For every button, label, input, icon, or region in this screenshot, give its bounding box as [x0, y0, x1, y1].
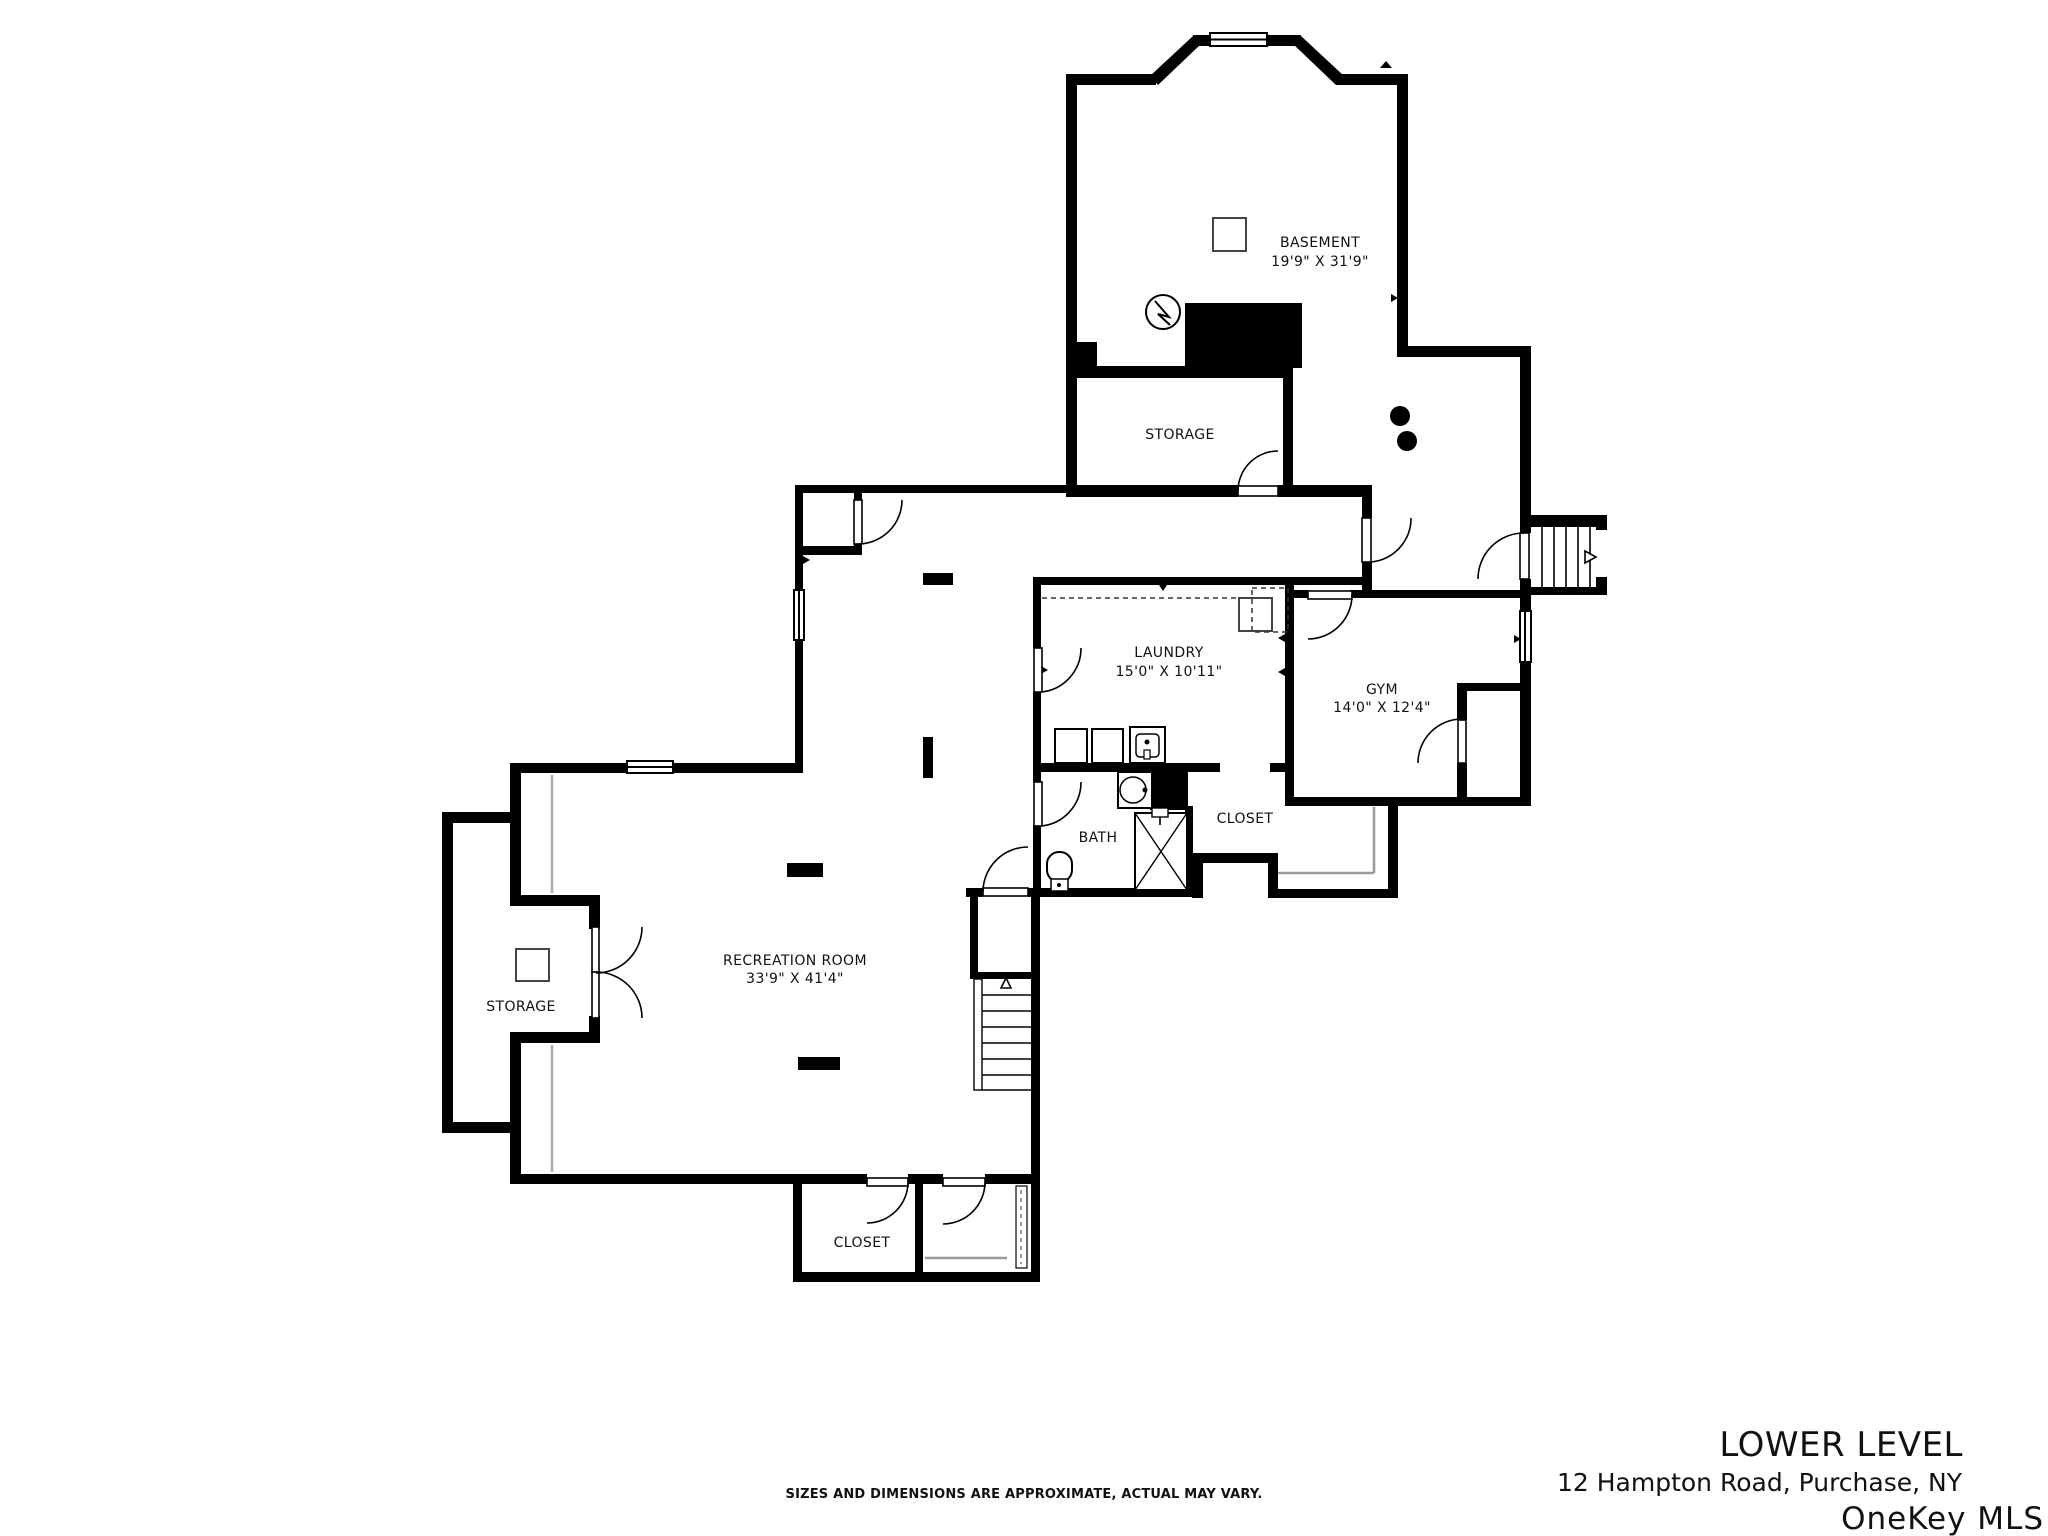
- door-leaf: [1520, 533, 1529, 579]
- washer-symbol: [1055, 729, 1087, 763]
- door-leaf: [854, 500, 862, 544]
- door-leaf: [1034, 782, 1042, 826]
- door-leaf: [1034, 648, 1042, 692]
- column-post: [923, 573, 953, 585]
- storage-post-symbol: [516, 949, 549, 981]
- room-label-recreation: RECREATION ROOM: [723, 953, 867, 969]
- door-leaf: [1458, 720, 1466, 763]
- double-door-leaf: [592, 927, 599, 973]
- chimney-block: [1185, 303, 1302, 368]
- door-leaf: [1308, 591, 1352, 599]
- dryer-symbol: [1092, 729, 1123, 763]
- room-label-closet-gym: CLOSET: [1217, 811, 1274, 827]
- door-leaf: [1238, 486, 1278, 496]
- door-leaf: [867, 1178, 908, 1186]
- disclaimer-text: SIZES AND DIMENSIONS ARE APPROXIMATE, AC…: [786, 1487, 1263, 1502]
- stairs-lower: [974, 978, 1031, 1090]
- room-label-storage-upper: STORAGE: [1145, 427, 1214, 443]
- footer: SIZES AND DIMENSIONS ARE APPROXIMATE, AC…: [786, 1425, 2044, 1536]
- room-dims-gym: 14'0" X 12'4": [1333, 700, 1431, 716]
- column-post: [798, 1057, 840, 1070]
- room-dims-recreation: 33'9" X 41'4": [746, 971, 844, 987]
- water-heater-symbol: [1146, 295, 1180, 329]
- mls-watermark: OneKey MLS: [1841, 1501, 2044, 1536]
- floor-title: LOWER LEVEL: [1719, 1425, 1963, 1465]
- toilet-symbol: [1047, 852, 1072, 891]
- room-label-gym: GYM: [1366, 682, 1398, 698]
- door-leaf: [1362, 518, 1371, 562]
- room-label-bath: BATH: [1079, 830, 1118, 846]
- closet-rod: [1016, 1186, 1027, 1268]
- room-label-laundry: LAUNDRY: [1134, 645, 1203, 661]
- laundry-sink-symbol: [1130, 727, 1165, 763]
- column-dot: [1397, 431, 1417, 451]
- basement-post-symbol: [1213, 218, 1246, 251]
- floor-plan-drawing: BASEMENT 19'9" X 31'9" STORAGE LAUNDRY 1…: [0, 0, 2048, 1536]
- room-label-closet-lower: CLOSET: [834, 1235, 891, 1251]
- room-label-storage-left: STORAGE: [486, 999, 555, 1015]
- room-dims-basement: 19'9" X 31'9": [1271, 254, 1369, 270]
- floor-plan-page: BASEMENT 19'9" X 31'9" STORAGE LAUNDRY 1…: [0, 0, 2048, 1536]
- column-post: [787, 863, 823, 877]
- room-label-basement: BASEMENT: [1280, 235, 1360, 251]
- door-leaf: [943, 1178, 985, 1186]
- column-dot: [1390, 406, 1410, 426]
- double-door-leaf: [592, 972, 599, 1018]
- walls: [442, 35, 1607, 1282]
- room-dims-laundry: 15'0" X 10'11": [1115, 664, 1222, 680]
- column-post: [923, 737, 933, 778]
- bath-sink-symbol: [1118, 772, 1152, 808]
- shower-symbol: [1135, 808, 1187, 890]
- stairs-direction-arrow: [1001, 978, 1011, 988]
- property-address: 12 Hampton Road, Purchase, NY: [1557, 1468, 1963, 1497]
- door-leaf: [983, 888, 1028, 896]
- laundry-table-symbol: [1239, 598, 1272, 631]
- stairs-upper: [1542, 527, 1596, 587]
